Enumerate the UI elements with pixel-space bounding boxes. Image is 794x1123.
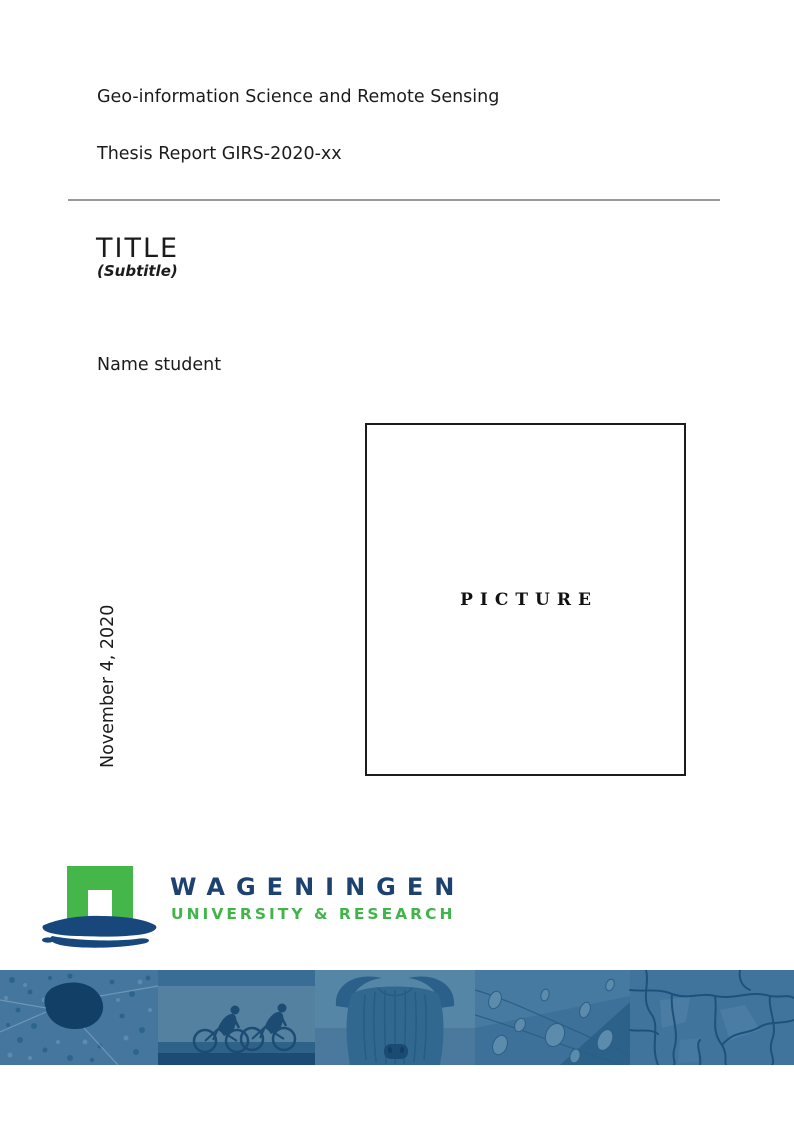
cyclists-photo bbox=[158, 970, 315, 1065]
document-title: TITLE bbox=[96, 233, 179, 264]
thesis-cover-page: Geo-information Science and Remote Sensi… bbox=[0, 0, 794, 1123]
logo-wordmark: WAGENINGEN bbox=[170, 873, 465, 901]
author-name: Name student bbox=[97, 355, 221, 376]
butterfly-wing-droplets-photo bbox=[475, 970, 630, 1065]
horizontal-divider bbox=[68, 199, 720, 201]
highland-cow-photo bbox=[315, 970, 475, 1065]
photo-banner bbox=[0, 970, 794, 1065]
program-name: Geo-information Science and Remote Sensi… bbox=[97, 87, 499, 108]
logo-subtitle: UNIVERSITY & RESEARCH bbox=[171, 905, 455, 923]
wageningen-logo: WAGENINGEN UNIVERSITY & RESEARCH bbox=[40, 862, 470, 957]
picture-placeholder-label: PICTURE bbox=[453, 590, 598, 610]
photo-banner-strip bbox=[0, 970, 794, 1065]
publication-date: November 4, 2020 bbox=[95, 598, 121, 768]
document-subtitle: (Subtitle) bbox=[97, 262, 178, 280]
picture-placeholder-box: PICTURE bbox=[365, 423, 686, 776]
aerial-map-photo bbox=[0, 970, 158, 1065]
report-number: Thesis Report GIRS-2020-xx bbox=[97, 144, 342, 165]
cracked-earth-photo bbox=[630, 970, 794, 1065]
wageningen-arch-icon bbox=[40, 862, 162, 954]
